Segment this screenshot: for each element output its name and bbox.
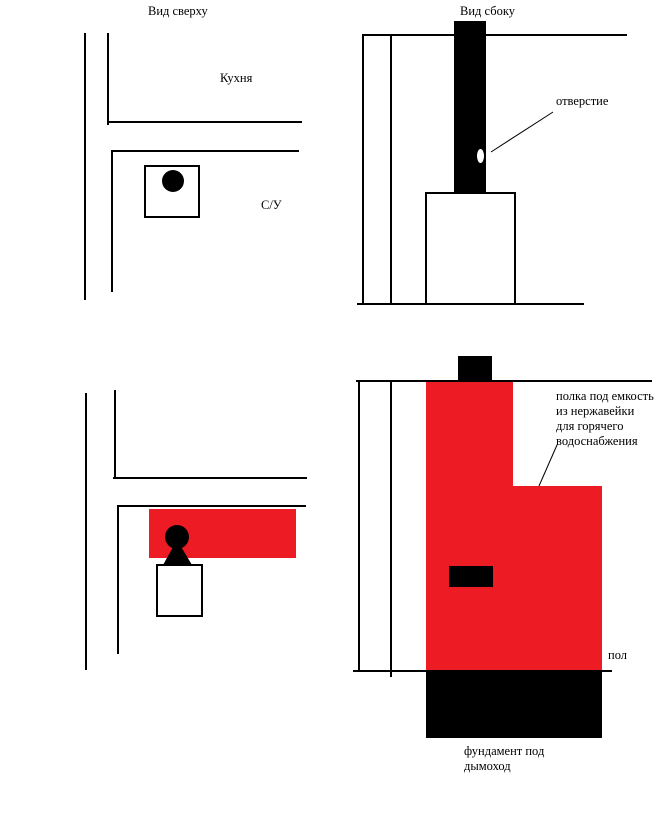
- wall-line-outer: [362, 34, 364, 305]
- chimney-pipe-bar: [454, 21, 486, 193]
- foundation-annotation: фундамент под дымоход: [464, 744, 544, 774]
- wall-line-outer-lower: [358, 380, 360, 671]
- bathroom-label: С/У: [261, 198, 282, 213]
- bathroom-wall-line-lower: [117, 505, 306, 507]
- kitchen-wall-line: [107, 121, 302, 123]
- firebox-opening-block: [449, 566, 493, 587]
- inner-wall-line-kitchen: [107, 33, 109, 125]
- chimney-hole-plan-dot: [162, 170, 184, 192]
- top-view-upper-title: Вид сверху: [148, 4, 208, 19]
- side-view-upper-title: Вид сбоку: [460, 4, 515, 19]
- outer-wall-line-lower: [85, 393, 87, 670]
- shelf-annotation: полка под емкость из нержавейки для горя…: [556, 389, 654, 449]
- shelf-leader-line: [539, 445, 557, 486]
- foundation-annotation-line-2: дымоход: [464, 759, 544, 774]
- outer-wall-line: [84, 33, 86, 300]
- foundation-annotation-line-1: фундамент под: [464, 744, 544, 759]
- hole-leader-line: [491, 112, 553, 152]
- hole-label: отверстие: [556, 94, 608, 109]
- stove-plan-outline-lower: [156, 564, 203, 617]
- shelf-annotation-line-3: для горячего: [556, 419, 654, 434]
- inner-wall-line-lower-top: [114, 390, 116, 479]
- stove-side-outline: [425, 192, 516, 305]
- bathroom-wall-line: [111, 150, 299, 152]
- ceiling-line: [362, 34, 627, 36]
- kitchen-wall-line-lower: [113, 477, 307, 479]
- shelf-annotation-line-1: полка под емкость: [556, 389, 654, 404]
- inner-wall-line-lower-bottom: [117, 505, 119, 654]
- floor-line-upper: [357, 303, 584, 305]
- shelf-annotation-line-2: из нержавейки: [556, 404, 654, 419]
- foundation-block: [426, 671, 602, 738]
- wall-line-inner: [390, 34, 392, 305]
- floor-label: пол: [608, 648, 627, 663]
- shelf-plan-red-rect: [149, 509, 296, 558]
- chimney-stub-block: [458, 356, 492, 383]
- kitchen-label: Кухня: [220, 71, 252, 86]
- wall-line-inner-lower: [390, 380, 392, 677]
- pipe-hole-ellipse: [477, 149, 484, 163]
- inner-wall-line-bathroom: [111, 150, 113, 292]
- paint-drawing-canvas: Вид сверху Кухня С/У Вид сбоку отверстие…: [0, 0, 656, 829]
- shelf-annotation-line-4: водоснабжения: [556, 434, 654, 449]
